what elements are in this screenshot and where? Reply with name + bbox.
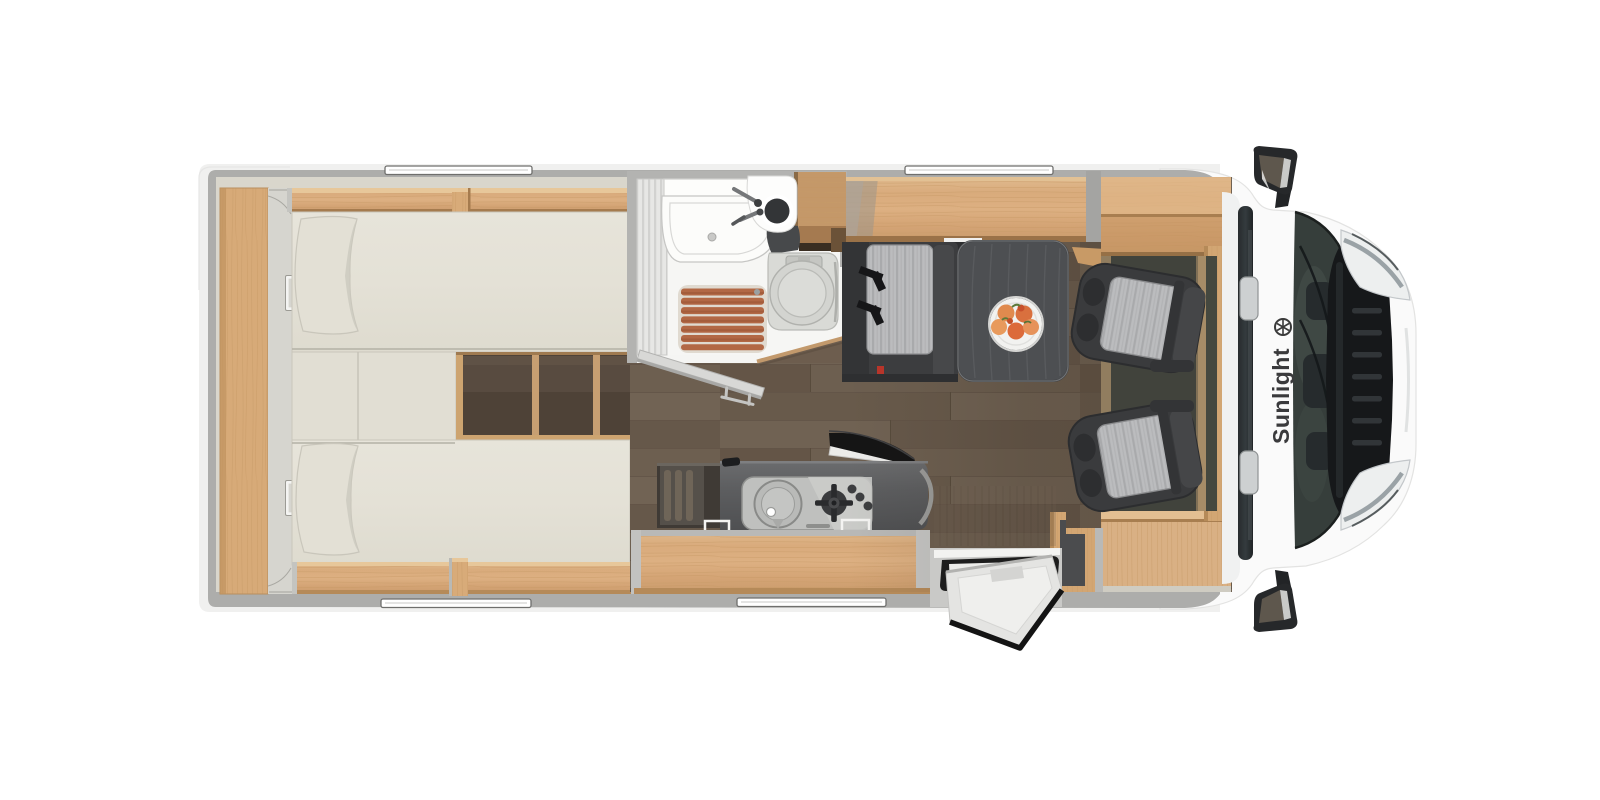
svg-text:Sunlight: Sunlight <box>1268 348 1294 444</box>
